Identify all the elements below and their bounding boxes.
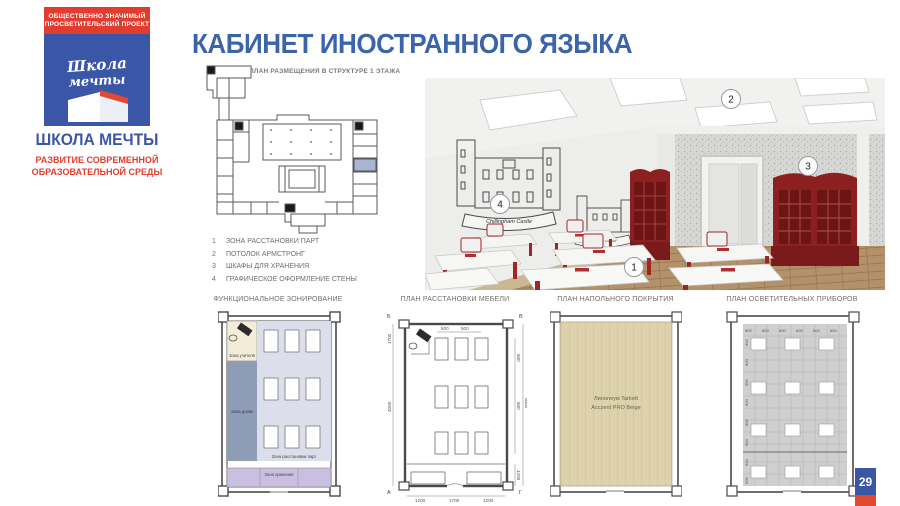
lighting-plan-title: ПЛАН ОСВЕТИТЕЛЬНЫХ ПРИБОРОВ <box>722 296 862 303</box>
furniture-desks <box>435 338 488 454</box>
zoning-plan-title: ФУНКЦИОНАЛЬНОЕ ЗОНИРОВАНИЕ <box>208 296 348 303</box>
marker-1: 1 <box>631 263 637 274</box>
school-building-icon <box>62 90 134 124</box>
dim-bottom1: 1200 <box>415 498 426 503</box>
zone-board-label: Зона доски <box>231 409 253 414</box>
dim-right1: 600 <box>516 354 521 362</box>
slide: ОБЩЕСТВЕННО ЗНАЧИМЫЙ ПРОСВЕТИТЕЛЬСКИЙ ПР… <box>0 0 900 506</box>
dim-left-mid: 4000 <box>387 401 392 412</box>
page-badge-accent <box>855 495 876 506</box>
page-number: 29 <box>855 468 876 495</box>
flooring-plan-drawing: Линолеум Tarkett Acczent PRO Beige <box>550 308 682 500</box>
svg-text:600: 600 <box>744 459 749 466</box>
brand-name: ШКОЛА МЕЧТЫ <box>35 130 158 150</box>
svg-text:600: 600 <box>744 339 749 346</box>
svg-text:600: 600 <box>813 328 820 333</box>
svg-text:600: 600 <box>744 359 749 366</box>
furniture-plan-drawing: 500 500 600 600 6000 1200 1700 4000 1200… <box>385 308 527 504</box>
legend-label: ШКАФЫ ДЛЯ ХРАНЕНИЯ <box>226 263 309 270</box>
legend-num: 4 <box>212 276 226 283</box>
wall-pilaster-right <box>857 126 869 248</box>
classroom-render: Chillingham Castle Conwy Castle <box>425 78 885 290</box>
legend-item-2: 2 ПОТОЛОК АРМСТРОНГ <box>212 251 357 258</box>
marker-4: 4 <box>497 200 503 211</box>
project-badge: ОБЩЕСТВЕННО ЗНАЧИМЫЙ ПРОСВЕТИТЕЛЬСКИЙ ПР… <box>44 7 150 34</box>
furniture-teacher-desk <box>409 329 431 354</box>
brand-tagline: РАЗВИТИЕ СОВРЕМЕННОЙ ОБРАЗОВАТЕЛЬНОЙ СРЕ… <box>28 155 167 179</box>
marker-3: 3 <box>805 162 811 173</box>
axis-tl: Б <box>387 314 391 320</box>
svg-text:600: 600 <box>745 328 752 333</box>
zoning-desks <box>264 330 320 448</box>
lighting-plan-drawing: 600600 600600 600600 600 600 600 600 600… <box>725 308 861 500</box>
svg-text:600: 600 <box>744 399 749 406</box>
dim-right-total: 6000 <box>524 398 527 409</box>
school-logo: Школа мечты <box>44 34 150 126</box>
page-number-badge: 29 <box>855 468 876 506</box>
flooring-material-line2: Acczent PRO Beige <box>591 405 640 411</box>
svg-text:600: 600 <box>779 328 786 333</box>
legend: 1 ЗОНА РАССТАНОВКИ ПАРТ 2 ПОТОЛОК АРМСТР… <box>212 238 357 288</box>
dim-left-top: 1700 <box>387 333 392 344</box>
legend-label: ПОТОЛОК АРМСТРОНГ <box>226 251 305 258</box>
brand-tagline-line1: РАЗВИТИЕ СОВРЕМЕННОЙ <box>28 155 167 167</box>
marker-2: 2 <box>728 95 734 106</box>
legend-item-3: 3 ШКАФЫ ДЛЯ ХРАНЕНИЯ <box>212 263 357 270</box>
project-badge-line1: ОБЩЕСТВЕННО ЗНАЧИМЫЙ <box>44 13 150 21</box>
dim-right2: 600 <box>516 402 521 410</box>
zone-desks-label: Зона расстановки парт <box>272 454 317 459</box>
zone-storage-label: Зона хранения <box>265 472 294 477</box>
axis-tr: В <box>519 314 523 320</box>
dim-bottom3: 1200 <box>483 498 494 503</box>
legend-item-1: 1 ЗОНА РАССТАНОВКИ ПАРТ <box>212 238 357 245</box>
flooring-plan-title: ПЛАН НАПОЛЬНОГО ПОКРЫТИЯ <box>548 296 683 303</box>
legend-item-4: 4 ГРАФИЧЕСКОЕ ОФОРМЛЕНИЕ СТЕНЫ <box>212 276 357 283</box>
legend-label: ЗОНА РАССТАНОВКИ ПАРТ <box>226 238 319 245</box>
site-plan-drawing <box>195 62 415 234</box>
legend-label: ГРАФИЧЕСКОЕ ОФОРМЛЕНИЕ СТЕНЫ <box>226 276 357 283</box>
flooring-area <box>560 322 672 486</box>
zoning-plan-drawing: Зона учителя Зона доски Зона расстановки… <box>218 308 342 500</box>
axis-br: Г <box>519 490 522 496</box>
project-badge-line2: ПРОСВЕТИТЕЛЬСКИЙ ПРОЕКТ <box>44 21 150 29</box>
dim-right-bottom: 1200 <box>516 470 521 481</box>
flooring-material-line1: Линолеум Tarkett <box>594 396 639 402</box>
dim-top2: 500 <box>461 326 469 331</box>
svg-text:600: 600 <box>762 328 769 333</box>
svg-text:600: 600 <box>744 477 749 484</box>
dim-top1: 500 <box>441 326 449 331</box>
furniture-plan-title: ПЛАН РАССТАНОВКИ МЕБЕЛИ <box>385 296 525 303</box>
legend-num: 1 <box>212 238 226 245</box>
zone-teacher-label: Зона учителя <box>229 353 255 358</box>
dim-bottom2: 1700 <box>449 498 460 503</box>
legend-num: 2 <box>212 251 226 258</box>
axis-bl: А <box>387 490 391 496</box>
svg-text:600: 600 <box>744 419 749 426</box>
svg-text:600: 600 <box>744 379 749 386</box>
page-title: КАБИНЕТ ИНОСТРАННОГО ЯЗЫКА <box>192 28 750 60</box>
svg-text:600: 600 <box>830 328 837 333</box>
legend-num: 3 <box>212 263 226 270</box>
storage-cabinet-right <box>771 173 859 266</box>
svg-text:600: 600 <box>796 328 803 333</box>
brand-tagline-line2: ОБРАЗОВАТЕЛЬНОЙ СРЕДЫ <box>28 167 167 179</box>
svg-text:600: 600 <box>744 439 749 446</box>
